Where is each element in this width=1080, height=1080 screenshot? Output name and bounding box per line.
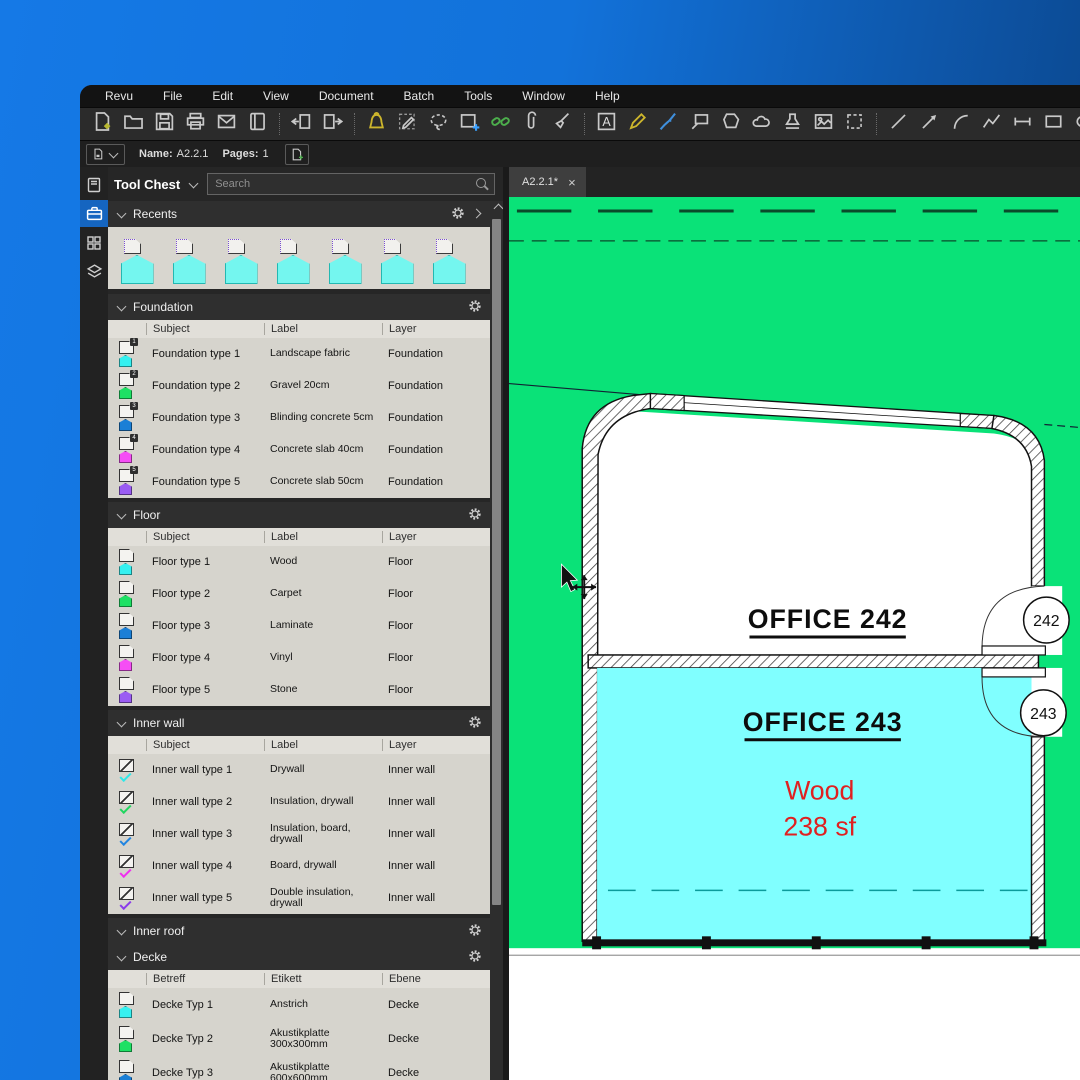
tool-subject: Inner wall type 3 — [146, 828, 264, 840]
color-chip — [119, 1040, 132, 1052]
door-242-leaf — [982, 646, 1045, 655]
tool-row[interactable]: Floor type 4VinylFloor — [108, 642, 490, 674]
section-header-inner-roof[interactable]: Inner roof — [108, 918, 490, 944]
name-value: A2.2.1 — [177, 148, 209, 160]
gear-icon — [451, 206, 465, 220]
right-wall-lower — [1032, 737, 1045, 942]
polygon-tool-icon — [119, 581, 134, 594]
polyline-button[interactable] — [977, 109, 1006, 139]
toolbar-separator — [584, 113, 585, 135]
tool-subject: Inner wall type 1 — [146, 764, 264, 776]
tool-label: Carpet — [264, 588, 382, 600]
line-button[interactable] — [884, 109, 913, 139]
mullion-tick — [1030, 936, 1039, 949]
tool-layer: Inner wall — [382, 796, 490, 808]
snapshot-button[interactable] — [840, 109, 869, 139]
tool-icon — [119, 791, 135, 813]
image-button[interactable] — [809, 109, 838, 139]
tool-icon — [119, 759, 135, 781]
tool-subject: Foundation type 4 — [146, 444, 264, 456]
tool-thumbnail-room-icon — [173, 255, 206, 284]
tool-label: Concrete slab 50cm — [264, 476, 382, 488]
polygon-tool-icon — [119, 549, 134, 562]
email-icon — [212, 109, 241, 134]
color-chip — [119, 691, 132, 703]
col-header-layer: Layer — [382, 323, 490, 335]
attachment-button[interactable] — [517, 109, 546, 139]
color-chip — [119, 595, 132, 607]
svg-text:A: A — [602, 115, 611, 129]
menu-item-batch[interactable]: Batch — [389, 85, 450, 107]
pages-label: Pages: — [222, 148, 258, 160]
menu-item-edit[interactable]: Edit — [197, 85, 248, 107]
page-margin-white — [509, 948, 1080, 1080]
tool-icon — [119, 581, 135, 607]
room-242-tag: 242 — [1033, 613, 1060, 630]
arc-icon — [946, 109, 975, 134]
tool-icon — [119, 1060, 135, 1080]
arrow-icon — [915, 109, 944, 134]
recent-tool[interactable] — [170, 239, 208, 284]
sidebar-item-tool-chest[interactable] — [80, 200, 108, 227]
color-chip — [119, 419, 132, 431]
gear-icon — [468, 949, 482, 963]
dimension-button[interactable] — [1008, 109, 1037, 139]
menu-item-file[interactable]: File — [148, 85, 197, 107]
document-area: A2.2.1* × — [509, 167, 1080, 1080]
section-title: Inner roof — [133, 924, 462, 938]
col-header-layer: Ebene — [382, 973, 490, 985]
tool-icon-cell — [108, 581, 146, 607]
tool-label: Vinyl — [264, 652, 382, 664]
tool-subject: Foundation type 1 — [146, 348, 264, 360]
polygon-button[interactable] — [716, 109, 745, 139]
col-header-subject: Subject — [146, 323, 264, 335]
toolbar-separator — [354, 113, 355, 135]
tool-row[interactable]: 4Foundation type 4Concrete slab 40cmFoun… — [108, 434, 490, 466]
tool-subject: Foundation type 3 — [146, 412, 264, 424]
chevron-down-icon[interactable] — [189, 178, 199, 188]
markup-add-icon — [455, 109, 484, 134]
section-gear-button[interactable] — [451, 206, 465, 223]
section-header-inner-wall[interactable]: Inner wall — [108, 710, 490, 736]
tool-icon-cell — [108, 677, 146, 703]
section-gear-button[interactable] — [468, 507, 482, 524]
tool-row[interactable]: Decke Typ 1AnstrichDecke — [108, 988, 490, 1022]
tool-icon — [119, 823, 135, 845]
ellipse-icon — [1070, 109, 1080, 134]
import-pages-icon — [287, 109, 316, 134]
pen-icon — [654, 109, 683, 134]
tool-thumbnail-room-icon — [381, 255, 414, 284]
area-annotation: 238 sf — [783, 811, 856, 841]
section-gear-button[interactable] — [468, 949, 482, 966]
tool-icon-cell — [108, 823, 146, 845]
panel-scrollbar[interactable] — [490, 201, 503, 1080]
lasso-button[interactable] — [424, 109, 453, 139]
color-chip — [119, 659, 132, 671]
tool-subject: Inner wall type 2 — [146, 796, 264, 808]
mullion-tick — [812, 936, 821, 949]
section-gear-button[interactable] — [468, 715, 482, 732]
polyline-icon — [977, 109, 1006, 134]
insert-page-icon — [290, 147, 303, 162]
menu-item-document[interactable]: Document — [304, 85, 389, 107]
tool-icon-cell: 1 — [108, 341, 146, 367]
lasso-icon — [424, 109, 453, 134]
search-icon — [476, 178, 486, 188]
tab-label: A2.2.1* — [522, 176, 558, 188]
tool-icon — [119, 677, 135, 703]
tool-row[interactable]: Floor type 3LaminateFloor — [108, 610, 490, 642]
menu-item-help[interactable]: Help — [580, 85, 635, 107]
arc-button[interactable] — [946, 109, 975, 139]
tool-thumbnail-room-icon — [433, 255, 466, 284]
markup-editor-button[interactable] — [393, 109, 422, 139]
recent-tool[interactable] — [326, 239, 364, 284]
tool-icon — [119, 645, 135, 671]
tool-subject: Decke Typ 3 — [146, 1067, 264, 1079]
pencil-button[interactable] — [623, 109, 652, 139]
hyperlink-button[interactable] — [486, 109, 515, 139]
gear-icon — [468, 507, 482, 521]
tool-icon: 4 — [119, 437, 135, 463]
tool-row[interactable]: Inner wall type 1DrywallInner wall — [108, 754, 490, 786]
pages-value: 1 — [263, 148, 269, 160]
new-file-icon — [88, 109, 117, 134]
tool-thumbnail-room-icon — [277, 255, 310, 284]
sidebar-item-file-access[interactable] — [80, 171, 108, 198]
rectangle-icon — [1039, 109, 1068, 134]
pen-button[interactable] — [654, 109, 683, 139]
tool-subject: Floor type 4 — [146, 652, 264, 664]
polygon-tool-icon — [119, 1060, 134, 1073]
tool-icon: 3 — [119, 405, 135, 431]
markup-editor-icon — [393, 109, 422, 134]
attachment-icon — [517, 109, 546, 134]
dimension-icon — [1008, 109, 1037, 134]
section-title: Recents — [133, 207, 445, 221]
section-title: Decke — [133, 950, 462, 964]
mullion-tick — [922, 936, 931, 949]
open-folder-button[interactable] — [119, 109, 148, 139]
tool-thumbnail-square-icon — [436, 239, 453, 254]
tool-table: SubjectLabelLayerInner wall type 1Drywal… — [108, 736, 490, 914]
menu-item-tools[interactable]: Tools — [449, 85, 507, 107]
tool-layer: Floor — [382, 684, 490, 696]
tool-row[interactable]: Inner wall type 3Insulation, board, dryw… — [108, 818, 490, 850]
color-chip — [119, 563, 132, 575]
tool-number-badge: 2 — [130, 370, 138, 378]
chevron-down-icon — [117, 925, 127, 935]
material-annotation: Wood — [785, 776, 854, 806]
pencil-icon — [623, 109, 652, 134]
hyperlink-icon — [486, 109, 515, 134]
tool-icon: 5 — [119, 469, 135, 495]
tool-thumbnail-room-icon — [225, 255, 258, 284]
ellipse-button[interactable] — [1070, 109, 1080, 139]
tool-label: Concrete slab 40cm — [264, 444, 382, 456]
tool-layer: Foundation — [382, 412, 490, 424]
section-header-foundation[interactable]: Foundation — [108, 294, 490, 320]
color-chip — [119, 1074, 132, 1080]
main-toolbar: A — [80, 107, 1080, 140]
erase-button[interactable] — [548, 109, 577, 139]
section-title: Foundation — [133, 300, 462, 314]
tool-icon-cell: 4 — [108, 437, 146, 463]
col-header-label: Etikett — [264, 973, 382, 985]
stamp-icon — [778, 109, 807, 134]
tool-icon-cell — [108, 613, 146, 639]
tool-chest-panel: Tool Chest RecentsFoundationSubjectLabel… — [108, 167, 509, 1080]
tool-chest-icon — [86, 205, 103, 222]
chevron-right-icon[interactable] — [472, 208, 482, 218]
toolbar-separator — [279, 113, 280, 135]
tool-layer: Floor — [382, 588, 490, 600]
section-gear-button[interactable] — [468, 923, 482, 940]
tool-layer: Inner wall — [382, 892, 490, 904]
tool-icon — [119, 549, 135, 575]
tool-label: Akustikplatte 600x600mm — [264, 1062, 382, 1080]
tool-icon-cell — [108, 791, 146, 813]
toolbar-separator — [876, 113, 877, 135]
col-header-layer: Layer — [382, 531, 490, 543]
tool-row[interactable]: Decke Typ 3Akustikplatte 600x600mmDecke — [108, 1056, 490, 1080]
tool-subject: Floor type 3 — [146, 620, 264, 632]
document-tab[interactable]: A2.2.1* × — [509, 167, 586, 197]
section-title: Inner wall — [133, 716, 462, 730]
sidebar-item-thumbnails[interactable] — [80, 229, 108, 256]
tool-row[interactable]: Floor type 5StoneFloor — [108, 674, 490, 706]
mullion-tick — [702, 936, 711, 949]
save-button[interactable] — [150, 109, 179, 139]
tool-row[interactable]: Floor type 2CarpetFloor — [108, 578, 490, 610]
textbox-button[interactable]: A — [592, 109, 621, 139]
tool-icon-cell — [108, 645, 146, 671]
tool-icon-cell — [108, 549, 146, 575]
textbox-icon: A — [592, 109, 621, 134]
room-242-label: OFFICE 242 — [748, 604, 908, 634]
alert-button[interactable] — [362, 109, 391, 139]
tool-row[interactable]: Inner wall type 4Board, drywallInner wal… — [108, 850, 490, 882]
tool-row[interactable]: 1Foundation type 1Landscape fabricFounda… — [108, 338, 490, 370]
tool-icon-cell — [108, 887, 146, 909]
tool-label: Double insulation, drywall — [264, 887, 382, 910]
tool-chest-sections: RecentsFoundationSubjectLabelLayer1Found… — [108, 201, 490, 1080]
tool-icon — [119, 992, 135, 1018]
col-header-label: Label — [264, 531, 382, 543]
page-selector[interactable] — [86, 144, 125, 165]
chevron-down-icon — [117, 717, 127, 727]
section-header-floor[interactable]: Floor — [108, 502, 490, 528]
chevron-down-icon — [117, 208, 127, 218]
tool-thumbnail-square-icon — [280, 239, 297, 254]
tool-layer: Inner wall — [382, 828, 490, 840]
name-label: Name: — [139, 148, 173, 160]
recent-tool[interactable] — [274, 239, 312, 284]
callout-button[interactable] — [685, 109, 714, 139]
tool-thumbnail-room-icon — [329, 255, 362, 284]
tool-row[interactable]: Inner wall type 2Insulation, drywallInne… — [108, 786, 490, 818]
insert-page-button[interactable] — [285, 144, 309, 165]
tool-table: SubjectLabelLayer1Foundation type 1Lands… — [108, 320, 490, 498]
gear-icon — [468, 299, 482, 313]
color-chip — [119, 387, 132, 399]
search-wrap — [207, 173, 495, 195]
tool-thumbnail-square-icon — [332, 239, 349, 254]
markup-add-button[interactable] — [455, 109, 484, 139]
tool-subject: Inner wall type 5 — [146, 892, 264, 904]
revu-app-window: RevuFileEditViewDocumentBatchToolsWindow… — [80, 85, 1080, 1080]
room-243-label: OFFICE 243 — [743, 707, 903, 737]
menu-item-revu[interactable]: Revu — [90, 85, 148, 107]
tool-thumbnail-square-icon — [124, 239, 141, 254]
tool-icon: 1 — [119, 341, 135, 367]
tool-layer: Foundation — [382, 348, 490, 360]
scrollbar-thumb[interactable] — [492, 219, 501, 905]
profile-button[interactable] — [243, 109, 272, 139]
color-chip — [119, 451, 132, 463]
wall-stub-left — [651, 394, 685, 411]
tool-label: Drywall — [264, 764, 382, 776]
chevron-down-icon — [117, 301, 127, 311]
tool-layer: Decke — [382, 1033, 490, 1045]
recent-tool[interactable] — [378, 239, 416, 284]
new-file-button[interactable] — [88, 109, 117, 139]
section-gear-button[interactable] — [468, 299, 482, 316]
tool-subject: Floor type 1 — [146, 556, 264, 568]
stamp-button[interactable] — [778, 109, 807, 139]
tool-icon-cell: 5 — [108, 469, 146, 495]
panel-icon-strip — [80, 167, 108, 1080]
polygon-tool-icon — [119, 677, 134, 690]
section-header-decke[interactable]: Decke — [108, 944, 490, 970]
tool-chest-header: Tool Chest — [108, 167, 503, 201]
table-header-row: SubjectLabelLayer — [108, 528, 490, 546]
import-pages-button[interactable] — [287, 109, 316, 139]
document-tab-bar: A2.2.1* × — [509, 167, 1080, 197]
tool-icon-cell — [108, 759, 146, 781]
drawing-canvas[interactable]: 242 243 OFFICE 242 OFFICE 243 Wood 238 s… — [509, 197, 1080, 1080]
rectangle-button[interactable] — [1039, 109, 1068, 139]
tool-label: Landscape fabric — [264, 348, 382, 360]
profile-icon — [243, 109, 272, 134]
thumbnails-icon — [86, 235, 102, 251]
col-header-label: Label — [264, 739, 382, 751]
chevron-down-icon — [117, 509, 127, 519]
sidebar-item-layers[interactable] — [80, 258, 108, 285]
tool-thumbnail-square-icon — [384, 239, 401, 254]
col-header-layer: Layer — [382, 739, 490, 751]
search-input[interactable] — [207, 173, 495, 195]
cloud-icon — [747, 109, 776, 134]
email-button[interactable] — [212, 109, 241, 139]
line-icon — [884, 109, 913, 134]
polygon-tool-icon — [119, 645, 134, 658]
wall-stub-right — [960, 414, 994, 429]
tool-label: Board, drywall — [264, 860, 382, 872]
print-button[interactable] — [181, 109, 210, 139]
tool-layer: Foundation — [382, 380, 490, 392]
interior-wall — [588, 655, 1038, 668]
tool-icon — [119, 1026, 135, 1052]
tool-label: Gravel 20cm — [264, 380, 382, 392]
snapshot-icon — [840, 109, 869, 134]
tool-layer: Inner wall — [382, 764, 490, 776]
tool-icon: 2 — [119, 373, 135, 399]
file-access-icon — [86, 177, 102, 193]
tool-icon — [119, 887, 135, 909]
open-folder-icon — [119, 109, 148, 134]
polygon-tool-icon — [119, 992, 134, 1005]
tool-row[interactable]: Decke Typ 2Akustikplatte 300x300mmDecke — [108, 1022, 490, 1056]
tool-thumbnail-square-icon — [228, 239, 245, 254]
tool-number-badge: 4 — [130, 434, 138, 442]
recent-tool[interactable] — [430, 239, 468, 284]
save-icon — [150, 109, 179, 134]
recent-tool[interactable] — [222, 239, 260, 284]
panel-title: Tool Chest — [114, 177, 180, 192]
scroll-up-icon[interactable] — [494, 204, 503, 214]
menu-item-view[interactable]: View — [248, 85, 304, 107]
menu-item-window[interactable]: Window — [507, 85, 580, 107]
tool-row[interactable]: 5Foundation type 5Concrete slab 50cmFoun… — [108, 466, 490, 498]
cloud-button[interactable] — [747, 109, 776, 139]
export-pages-button[interactable] — [318, 109, 347, 139]
arrow-button[interactable] — [915, 109, 944, 139]
section-title: Floor — [133, 508, 462, 522]
polygon-tool-icon — [119, 1026, 134, 1039]
recent-tool[interactable] — [118, 239, 156, 284]
tool-icon — [119, 613, 135, 639]
floor-plan-svg: 242 243 OFFICE 242 OFFICE 243 Wood 238 s… — [509, 197, 1080, 1080]
tool-layer: Decke — [382, 999, 490, 1011]
tool-subject: Inner wall type 4 — [146, 860, 264, 872]
col-header-subject: Betreff — [146, 973, 264, 985]
col-header-label: Label — [264, 323, 382, 335]
gear-icon — [468, 923, 482, 937]
mullion-tick — [592, 936, 601, 949]
tool-layer: Inner wall — [382, 860, 490, 872]
tool-layer: Floor — [382, 620, 490, 632]
tool-table: BetreffEtikettEbeneDecke Typ 1AnstrichDe… — [108, 970, 490, 1080]
tool-icon-cell — [108, 1026, 146, 1052]
table-header-row: SubjectLabelLayer — [108, 320, 490, 338]
tool-layer: Floor — [382, 652, 490, 664]
desktop-background: RevuFileEditViewDocumentBatchToolsWindow… — [0, 0, 1080, 1080]
tool-icon — [119, 855, 135, 877]
section-header-recents[interactable]: Recents — [108, 201, 490, 227]
tool-row[interactable]: Inner wall type 5Double insulation, dryw… — [108, 882, 490, 914]
tool-row[interactable]: 2Foundation type 2Gravel 20cmFoundation — [108, 370, 490, 402]
tool-label: Stone — [264, 684, 382, 696]
tool-icon-cell — [108, 992, 146, 1018]
file-info-bar: Name: A2.2.1 Pages: 1 — [80, 140, 1080, 167]
close-icon[interactable]: × — [568, 175, 576, 190]
tool-subject: Decke Typ 2 — [146, 1033, 264, 1045]
alert-icon — [362, 109, 391, 134]
tool-label: Wood — [264, 556, 382, 568]
color-chip — [119, 355, 132, 367]
print-icon — [181, 109, 210, 134]
tool-number-badge: 1 — [130, 338, 138, 346]
tool-row[interactable]: Floor type 1WoodFloor — [108, 546, 490, 578]
tool-icon-cell — [108, 1060, 146, 1080]
tool-row[interactable]: 3Foundation type 3Blinding concrete 5cmF… — [108, 402, 490, 434]
tool-subject: Decke Typ 1 — [146, 999, 264, 1011]
chevron-down-icon — [109, 148, 119, 158]
tool-number-badge: 5 — [130, 466, 138, 474]
